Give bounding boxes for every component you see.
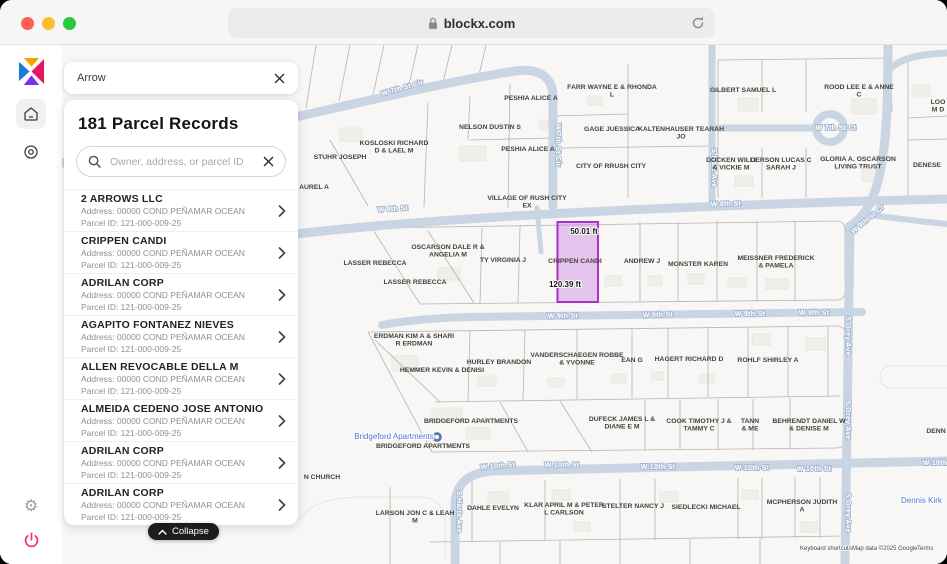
poi-label[interactable]: Bridgeford Apartments	[354, 432, 434, 441]
parcel-width-label: 50.01 ft	[570, 227, 598, 236]
parcel-record-row[interactable]: ADRILAN CORP Address: 00000 COND PEÑAMAR…	[64, 273, 298, 315]
street-label: S Grey Ave	[844, 316, 851, 356]
parcel-label: GAGE JUESSICA	[584, 126, 640, 133]
parcel-label: BRIDGEFORD APARTMENTS	[424, 418, 518, 425]
street-label: W 9th St	[548, 313, 579, 321]
app-area: 50.01 ft 120.39 ft W 7th St CirW 7th St …	[0, 45, 947, 564]
parcel-label: BRIDGEFORD APARTMENTS	[376, 443, 470, 450]
terms-link[interactable]: Terms	[917, 546, 933, 552]
parcel-label: DENN	[926, 428, 945, 435]
record-parcel-id: Parcel ID: 121-000-009-25	[81, 260, 278, 271]
keyboard-shortcuts-link[interactable]: Keyboard shortcuts	[800, 546, 852, 552]
parcel-label: TY VIRGINIA J	[480, 257, 526, 264]
parcel-label: EAN G	[621, 357, 643, 364]
clear-search-icon[interactable]	[263, 156, 274, 167]
collapse-label: Collapse	[172, 526, 209, 537]
record-address: Address: 00000 COND PEÑAMAR OCEAN	[81, 248, 278, 259]
record-address: Address: 00000 COND PEÑAMAR OCEAN	[81, 374, 278, 385]
minimize-window-button[interactable]	[42, 17, 55, 30]
sidebar-item-home[interactable]	[16, 99, 46, 129]
chevron-right-icon	[278, 331, 286, 343]
url-text: blockx.com	[444, 16, 516, 31]
record-owner-name: AGAPITO FONTANEZ NIEVES	[81, 319, 278, 331]
record-address: Address: 00000 COND PEÑAMAR OCEAN	[81, 500, 278, 511]
record-owner-name: ADRILAN CORP	[81, 445, 278, 457]
parcel-label: STUHR JOSEPH	[314, 154, 367, 161]
parcel-label: MONSTER KAREN	[668, 261, 728, 268]
record-owner-name: ADRILAN CORP	[81, 277, 278, 289]
search-icon	[88, 155, 101, 168]
street-label: W 7th St Cir	[554, 123, 561, 166]
street-label: W 10th St	[923, 460, 947, 467]
browser-chrome: blockx.com	[0, 0, 947, 45]
maximize-window-button[interactable]	[63, 17, 76, 30]
record-address: Address: 00000 COND PEÑAMAR OCEAN	[81, 416, 278, 427]
chevron-right-icon	[278, 373, 286, 385]
record-parcel-id: Parcel ID: 121-000-009-25	[81, 218, 278, 229]
poi-label[interactable]: Dennis Kirk	[901, 496, 943, 505]
parcel-record-row[interactable]: ALLEN REVOCABLE DELLA M Address: 00000 C…	[64, 357, 298, 399]
record-owner-name: ADRILAN CORP	[81, 487, 278, 499]
record-parcel-id: Parcel ID: 121-000-009-25	[81, 302, 278, 313]
chevron-right-icon	[278, 205, 286, 217]
poi-icon-dot	[435, 435, 439, 439]
parcel-label: DAHLE EVELYN	[467, 505, 519, 512]
parcel-label: TANN& ME	[741, 418, 759, 433]
street-label: W 8th St	[711, 200, 742, 208]
parcel-label: PESHIA ALICE A	[504, 95, 558, 102]
parcel-label: SIEDLECKI MICHAEL	[671, 504, 740, 511]
arrow-tool-card: Arrow	[64, 62, 298, 94]
close-window-button[interactable]	[21, 17, 34, 30]
parcel-record-row[interactable]: ALMEIDA CEDENO JOSE ANTONIO Address: 000…	[64, 399, 298, 441]
parcel-label: LOOM D	[931, 99, 946, 114]
parcel-label: ROHLF SHIRLEY A	[737, 357, 798, 364]
url-bar[interactable]: blockx.com	[228, 8, 715, 38]
record-owner-name: 2 ARROWS LLC	[81, 193, 278, 205]
parcel-label: HAGERT RICHARD D	[655, 356, 724, 363]
parcel-label: DOCKEN WILLI& VICKIE M	[706, 157, 756, 172]
parcel-label: GILBERT SAMUEL L	[710, 87, 776, 94]
record-parcel-id: Parcel ID: 121-000-009-25	[81, 428, 278, 439]
record-address: Address: 00000 COND PEÑAMAR OCEAN	[81, 458, 278, 469]
street-label: S Grey Ave	[844, 493, 851, 533]
home-icon	[22, 105, 40, 123]
target-icon	[22, 143, 40, 161]
settings-gear-icon[interactable]: ⚙	[24, 499, 38, 515]
parcel-label: LASSER REBECCA	[343, 260, 406, 267]
parcel-label: HURLEY BRANDON	[467, 359, 532, 366]
chevron-right-icon	[278, 289, 286, 301]
parcel-label: CRIPPEN CANDI	[548, 258, 602, 265]
parcel-record-row[interactable]: ADRILAN CORP Address: 00000 COND PEÑAMAR…	[64, 483, 298, 525]
street-label: S Harte Ave	[455, 491, 462, 533]
chevron-right-icon	[278, 499, 286, 511]
parcel-label: N CHURCH	[304, 474, 340, 481]
sidebar-item-locations[interactable]	[16, 137, 46, 167]
map-data-attribution: Map data ©2025 Google	[852, 545, 918, 552]
street-label: W 10th St	[797, 466, 832, 473]
street-label: W 9th St	[643, 312, 674, 320]
record-owner-name: ALMEIDA CEDENO JOSE ANTONIO	[81, 403, 278, 415]
collapse-button[interactable]: Collapse	[148, 523, 219, 540]
street-label: W 10th St	[545, 462, 580, 470]
record-address: Address: 00000 COND PEÑAMAR OCEAN	[81, 290, 278, 301]
app-sidebar: ⚙	[0, 45, 62, 564]
parcel-length-label: 120.39 ft	[549, 280, 581, 289]
parcel-label: AUREL A	[299, 184, 329, 191]
record-parcel-id: Parcel ID: 121-000-009-25	[81, 386, 278, 397]
record-owner-name: ALLEN REVOCABLE DELLA M	[81, 361, 278, 373]
parcel-label: HEMMER KEVIN & DENISI	[400, 367, 484, 374]
street-label: W 10th St	[641, 464, 676, 471]
chevron-right-icon	[278, 415, 286, 427]
record-parcel-id: Parcel ID: 121-000-009-25	[81, 344, 278, 355]
search-box[interactable]	[76, 146, 286, 177]
parcel-record-row[interactable]: AGAPITO FONTANEZ NIEVES Address: 00000 C…	[64, 315, 298, 357]
browser-window: blockx.com	[0, 0, 947, 564]
parcel-label: STELTER NANCY J	[602, 503, 664, 510]
blockx-logo-icon	[18, 58, 45, 85]
parcel-label: LASSER REBECCA	[383, 279, 446, 286]
parcel-label: PESHIA ALICE A	[501, 146, 555, 153]
record-address: Address: 00000 COND PEÑAMAR OCEAN	[81, 332, 278, 343]
close-icon[interactable]	[274, 73, 285, 84]
parcel-record-row[interactable]: 2 ARROWS LLC Address: 00000 COND PEÑAMAR…	[64, 189, 298, 231]
parcel-record-row[interactable]: ADRILAN CORP Address: 00000 COND PEÑAMAR…	[64, 441, 298, 483]
parcel-records-panel: 181 Parcel Records 2 ARROWS LLC Address:…	[64, 100, 298, 525]
lock-icon	[428, 17, 438, 30]
parcel-label: DENESE	[913, 162, 941, 169]
parcel-label: ANDREW J	[624, 258, 660, 265]
parcel-records-list: 2 ARROWS LLC Address: 00000 COND PEÑAMAR…	[64, 189, 298, 525]
record-parcel-id: Parcel ID: 121-000-009-25	[81, 512, 278, 523]
window-controls	[21, 17, 76, 30]
street-label: W 10th St	[735, 465, 770, 472]
parcel-record-row[interactable]: CRIPPEN CANDI Address: 00000 COND PEÑAMA…	[64, 231, 298, 273]
parcel-label: CITY OF RRUSH CITY	[576, 163, 647, 170]
street-label: W 9th St	[799, 310, 830, 317]
street-label: W 7th St Ct	[816, 125, 857, 132]
parcel-label: NELSON DUSTIN S	[459, 124, 521, 131]
reload-icon[interactable]	[690, 15, 706, 31]
record-address: Address: 00000 COND PEÑAMAR OCEAN	[81, 206, 278, 217]
chevron-right-icon	[278, 457, 286, 469]
chevron-right-icon	[278, 247, 286, 259]
chevron-up-icon	[158, 529, 167, 535]
arrow-tool-title: Arrow	[77, 72, 274, 84]
search-input[interactable]	[108, 155, 256, 169]
street-label: W 9th St	[735, 311, 766, 318]
records-count-title: 181 Parcel Records	[78, 114, 284, 134]
power-icon[interactable]	[22, 531, 41, 550]
record-owner-name: CRIPPEN CANDI	[81, 235, 278, 247]
record-parcel-id: Parcel ID: 121-000-009-25	[81, 470, 278, 481]
